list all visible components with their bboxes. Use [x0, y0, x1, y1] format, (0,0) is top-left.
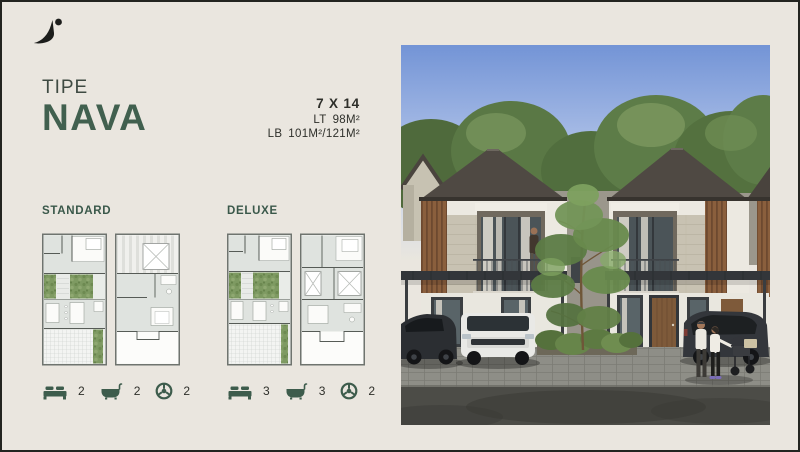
standard-floorplans — [42, 233, 205, 366]
house-render-photo — [401, 45, 770, 425]
variant-standard-label: STANDARD — [42, 205, 205, 217]
lot-dimensions: 7 X 14 — [268, 96, 360, 111]
building-area-row: LB101M²/121M² — [268, 128, 360, 140]
specs-block: 7 X 14 LT98M² LB101M²/121M² — [268, 96, 360, 140]
standard-ground-floorplan — [42, 233, 107, 366]
variant-deluxe-label: DELUXE — [227, 205, 390, 217]
standard-bedroom-count: 2 — [78, 384, 85, 398]
bed-icon — [227, 383, 253, 400]
standard-upper-floorplan — [115, 233, 180, 366]
variant-deluxe: DELUXE — [227, 205, 390, 400]
bathtub-icon — [100, 383, 124, 400]
deluxe-bathrooms: 3 — [285, 383, 341, 400]
deluxe-features: 3 3 2 — [227, 382, 390, 400]
standard-carport-count: 2 — [183, 384, 190, 398]
deluxe-carport-count: 2 — [368, 384, 375, 398]
bathtub-icon — [285, 383, 309, 400]
standard-bathroom-count: 2 — [134, 384, 141, 398]
deluxe-bathroom-count: 3 — [319, 384, 326, 398]
standard-bathrooms: 2 — [100, 383, 156, 400]
deluxe-upper-floorplan — [300, 233, 365, 366]
deluxe-carports: 2 — [340, 382, 390, 400]
townhouse-render-illustration — [401, 45, 770, 425]
page-title: NAVA — [42, 99, 147, 138]
standard-bedrooms: 2 — [42, 383, 100, 400]
white-suv — [456, 313, 540, 369]
land-area-row: LT98M² — [268, 114, 360, 126]
title-block: TIPE NAVA — [42, 78, 147, 138]
dark-suv-right — [680, 311, 770, 367]
brand-logo — [33, 16, 65, 46]
deluxe-floorplans — [227, 233, 390, 366]
deluxe-bedrooms: 3 — [227, 383, 285, 400]
brochure-slide: TIPE NAVA 7 X 14 LT98M² LB101M²/121M² ST… — [0, 0, 800, 452]
standard-carports: 2 — [155, 382, 205, 400]
land-area-value: 98M² — [333, 114, 360, 126]
deluxe-bedroom-count: 3 — [263, 384, 270, 398]
type-kicker: TIPE — [42, 78, 147, 97]
variant-standard: STANDARD — [42, 205, 205, 400]
land-area-label: LT — [313, 114, 326, 126]
standard-features: 2 2 2 — [42, 382, 205, 400]
deluxe-ground-floorplan — [227, 233, 292, 366]
building-area-label: LB — [268, 128, 283, 140]
building-area-value: 101M²/121M² — [288, 128, 360, 140]
steering-wheel-icon — [155, 382, 173, 400]
steering-wheel-icon — [340, 382, 358, 400]
brand-swoosh-icon — [33, 16, 65, 46]
bed-icon — [42, 383, 68, 400]
